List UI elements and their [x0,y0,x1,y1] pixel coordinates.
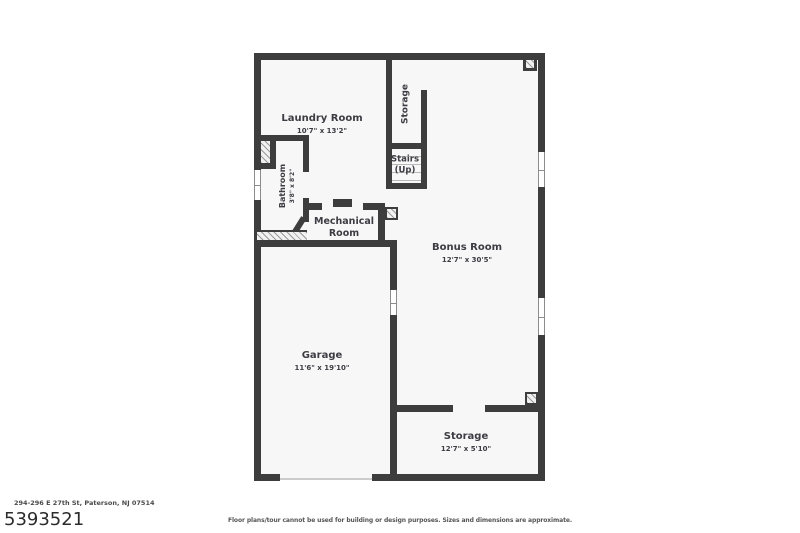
stairs-name: Stairs [391,154,419,165]
window-right-lower [538,298,545,335]
garage-name: Garage [294,350,349,363]
label-storage-top: Storage [400,84,411,124]
mechanical-door-leaf [333,199,352,207]
wall-outer-left [254,53,261,481]
wall-outer-bottom-right [372,474,545,481]
window-center-line [255,185,260,186]
label-bonus-room: Bonus Room 12'7" x 30'5" [432,242,502,264]
mechanical-room-name-line1: Mechanical [314,216,374,228]
wall-garage-bonus-divider-upper [390,247,397,290]
floor-plan-page: Laundry Room 10'7" x 13'2" Storage Stair… [0,0,800,533]
property-address: 294-296 E 27th St, Paterson, NJ 07514 [14,499,155,507]
bonus-room-name: Bonus Room [432,242,502,255]
window-right-upper [538,152,545,187]
corner-hatch-bottom-right [525,392,538,405]
bathroom-name: Bathroom [278,164,288,208]
bathroom-dims: 3'8" x 8'2" [289,164,297,208]
wall-storage-right [421,90,427,189]
window-left-bathroom [254,170,261,200]
wall-garage-top [254,240,397,247]
storage-top-name: Storage [400,84,411,124]
laundry-room-name: Laundry Room [281,113,362,126]
floor-plan: Laundry Room 10'7" x 13'2" Storage Stair… [254,53,545,481]
storage-bottom-name: Storage [441,431,491,444]
window-garage-bonus [390,290,397,315]
label-laundry-room: Laundry Room 10'7" x 13'2" [281,113,362,135]
wall-storage-bottom-divider-left [390,405,453,412]
wall-outer-right [538,53,545,481]
wall-closet-bottom [254,163,276,169]
window-center-line [391,303,396,304]
wall-closet-right [270,141,276,163]
bonus-room-dims: 12'7" x 30'5" [432,255,502,264]
wall-outer-top [254,53,545,60]
label-storage-bottom: Storage 12'7" x 5'10" [441,431,491,453]
label-bathroom: Bathroom 3'8" x 8'2" [278,164,297,208]
wall-bathroom-right-upper [303,135,309,172]
garage-dims: 11'6" x 19'10" [294,363,349,372]
mechanical-room-name-line2: Room [314,228,374,240]
wall-storage-bottom-divider-right [485,405,538,412]
window-center-line [539,317,544,318]
mechanical-chimney-hatch [385,207,398,220]
stairs-direction: (Up) [391,165,419,176]
listing-id: 5393521 [4,509,84,530]
wall-mechanical-top-left [305,203,322,210]
label-garage: Garage 11'6" x 19'10" [294,350,349,372]
window-center-line [539,170,544,171]
label-stairs: Stairs (Up) [391,154,419,175]
label-mechanical-room: Mechanical Room [314,216,374,240]
wall-outer-bottom-left [254,474,280,481]
garage-door-opening [280,478,372,480]
corner-hatch-top-right [523,57,537,71]
bathroom-closet-hatch [261,141,270,163]
storage-bottom-dims: 12'7" x 5'10" [441,444,491,453]
wall-garage-bonus-divider-lower [390,315,397,474]
laundry-room-dims: 10'7" x 13'2" [281,126,362,135]
wall-stairs-bottom [386,183,427,189]
disclaimer-text: Floor plans/tour cannot be used for buil… [228,517,572,524]
